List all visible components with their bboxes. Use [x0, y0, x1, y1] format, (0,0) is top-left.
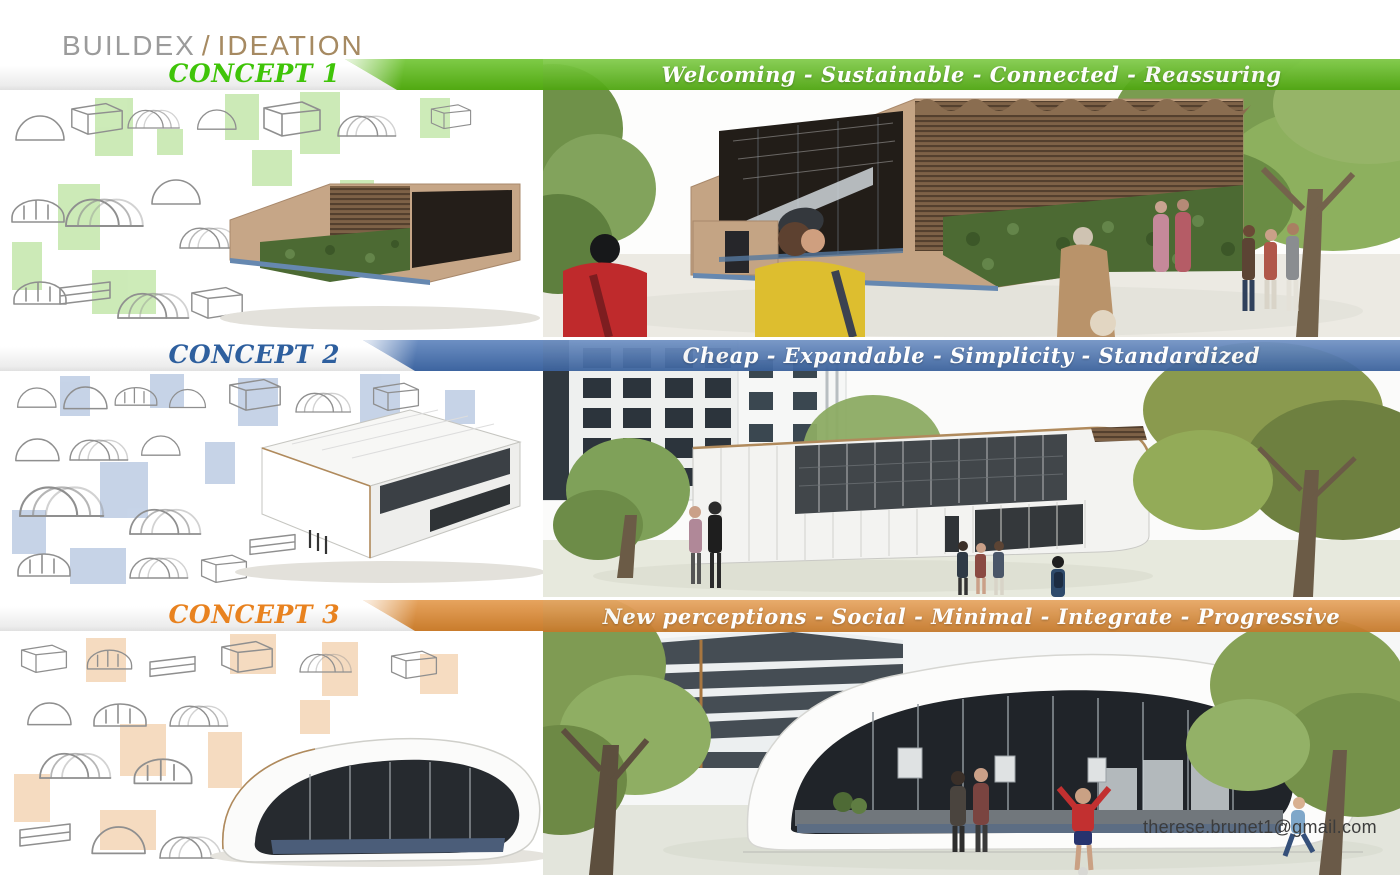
concept1-label: CONCEPT 1	[0, 59, 340, 90]
brand-text: BUILDEX	[62, 30, 196, 61]
concept3-mini-render	[210, 739, 543, 867]
concept1-render-scene	[543, 59, 1400, 337]
concept1-keywords-banner: Welcoming - Sustainable - Connected - Re…	[543, 59, 1400, 90]
concept3-label: CONCEPT 3	[0, 600, 340, 631]
concept2-sketch-panel	[0, 372, 543, 595]
concept2-keywords: Cheap - Expandable - Simplicity - Standa…	[683, 343, 1260, 368]
ideation-board: BUILDEX/IDEATION	[0, 0, 1400, 875]
concept3-keywords: New perceptions - Social - Minimal - Int…	[603, 604, 1341, 629]
concept3-sketch-panel	[0, 634, 543, 875]
concept2-render-panel	[543, 340, 1400, 597]
contact-email: therese.brunet1@gmail.com	[1143, 817, 1393, 838]
concept3-keywords-banner: New perceptions - Social - Minimal - Int…	[543, 600, 1400, 632]
concept2-keywords-banner: Cheap - Expandable - Simplicity - Standa…	[543, 340, 1400, 371]
concept2-mini-render	[235, 410, 543, 583]
concept2-render-scene	[543, 340, 1400, 597]
concept1-mini-render	[220, 184, 540, 330]
concept1-sketch-panel	[0, 92, 543, 337]
concept1-sketch-scene	[0, 92, 543, 337]
concept3-sketch-scene	[0, 634, 543, 875]
page-title: BUILDEX/IDEATION	[62, 30, 364, 62]
project-text: IDEATION	[218, 30, 364, 61]
title-separator: /	[196, 30, 218, 61]
concept1-keywords: Welcoming - Sustainable - Connected - Re…	[661, 62, 1281, 87]
concept1-render-panel	[543, 59, 1400, 337]
concept2-label: CONCEPT 2	[0, 340, 340, 371]
concept2-sketch-scene	[0, 372, 543, 595]
modular-building	[693, 426, 1149, 564]
